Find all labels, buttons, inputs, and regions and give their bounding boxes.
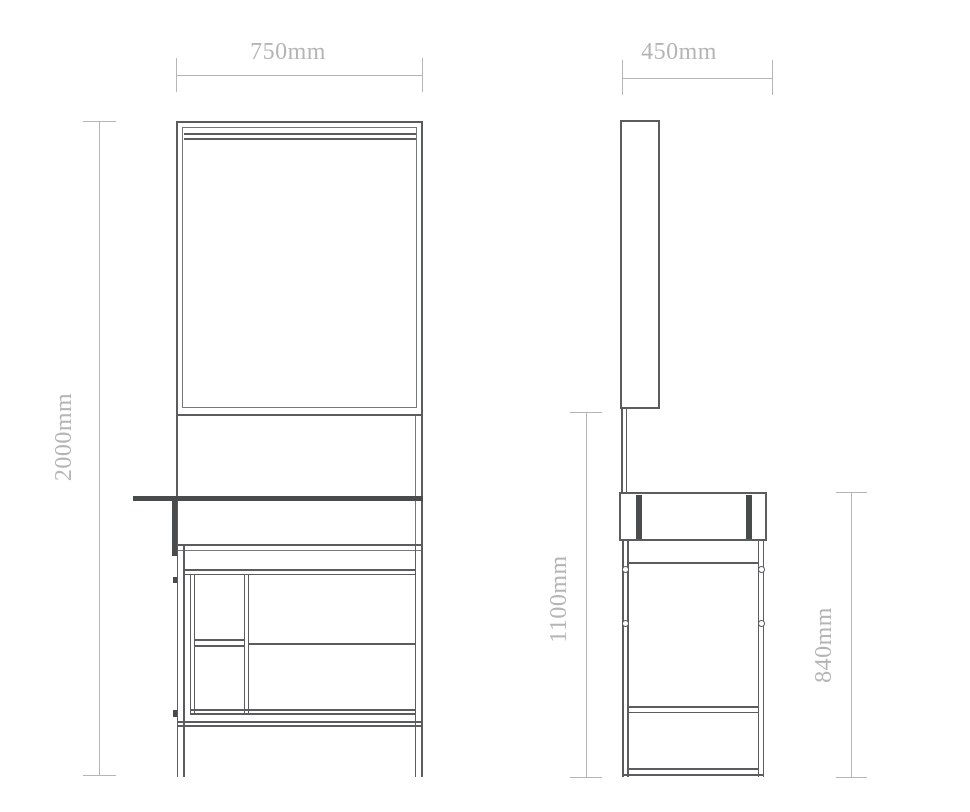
- dimension-line: [176, 75, 423, 76]
- dimension-tick: [422, 58, 423, 92]
- dimension-tick: [176, 58, 177, 92]
- mirror-light-bar-line: [184, 138, 416, 140]
- mirror-light-bar-line: [184, 133, 416, 135]
- side-upper-rail: [629, 562, 758, 564]
- mirror-inner-frame: [182, 127, 417, 408]
- dimension-side-depth-label: 450mm: [641, 40, 717, 64]
- shelf-unit-divider: [244, 575, 246, 713]
- dimension-tick: [772, 60, 773, 95]
- hinge-mark: [173, 710, 177, 717]
- drawer-right-edge: [421, 501, 423, 546]
- dimension-tick: [570, 777, 602, 778]
- bolt-icon: [622, 620, 629, 627]
- upper-rail-line: [185, 569, 415, 571]
- drawer-bottom-line: [177, 544, 424, 546]
- dimension-front-width-label: 750mm: [250, 40, 326, 64]
- dimension-tick: [83, 121, 116, 122]
- front-right-leg-inner: [415, 546, 417, 777]
- dimension-tick: [836, 492, 867, 493]
- dimension-tick: [83, 775, 116, 776]
- drawer-right-inner-edge: [415, 501, 417, 546]
- bottom-rail-line: [177, 725, 424, 727]
- side-front-leg: [627, 541, 629, 777]
- dimension-tick: [622, 60, 623, 95]
- side-shelf-line: [629, 706, 758, 708]
- apron-line: [178, 550, 421, 552]
- side-panel-bar: [636, 495, 642, 540]
- front-right-leg-outer: [421, 546, 423, 777]
- dimension-line: [622, 78, 773, 79]
- bolt-icon: [758, 566, 765, 573]
- hinge-mark: [173, 577, 177, 583]
- mid-panel-left-edge: [176, 416, 178, 497]
- dimension-table-section-height-label: 840mm: [812, 607, 836, 683]
- shelf-unit-left-wall: [194, 575, 196, 713]
- dimension-line: [851, 492, 852, 777]
- shelf-unit-left-wall: [190, 575, 192, 713]
- mid-panel-right-inner-edge: [415, 416, 417, 497]
- side-back-strip: [626, 409, 628, 492]
- side-back-leg: [763, 541, 765, 777]
- left-column-shelf: [195, 639, 244, 641]
- dimension-mirror-bottom-height-label: 1100mm: [547, 555, 571, 642]
- technical-drawing-canvas: 750mm 450mm 2000mm 1100mm 840mm: [0, 0, 970, 812]
- dimension-line: [99, 121, 100, 775]
- right-column-shelf: [249, 643, 415, 645]
- side-floor-rail: [622, 774, 764, 777]
- side-front-leg: [622, 541, 624, 777]
- left-column-shelf: [195, 645, 244, 647]
- bolt-icon: [622, 566, 629, 573]
- front-left-leg-inner: [183, 546, 185, 777]
- mid-panel-right-edge: [421, 416, 423, 497]
- side-bottom-rail: [629, 768, 758, 770]
- shelf-unit-bottom: [190, 713, 415, 715]
- dimension-tick: [836, 777, 867, 778]
- side-mirror-panel: [620, 120, 660, 409]
- side-shelf-line: [629, 712, 758, 714]
- side-panel-bar: [746, 495, 752, 540]
- dimension-line: [586, 412, 587, 777]
- side-back-strip: [621, 409, 623, 492]
- bottom-rail-line: [177, 721, 424, 723]
- dimension-tick: [570, 412, 602, 413]
- shelf-unit-bottom: [190, 709, 415, 711]
- side-back-leg: [758, 541, 760, 777]
- drawer-left-edge: [177, 501, 179, 546]
- upper-rail-line: [185, 574, 415, 576]
- bolt-icon: [758, 620, 765, 627]
- dimension-overall-height-label: 2000mm: [52, 393, 76, 481]
